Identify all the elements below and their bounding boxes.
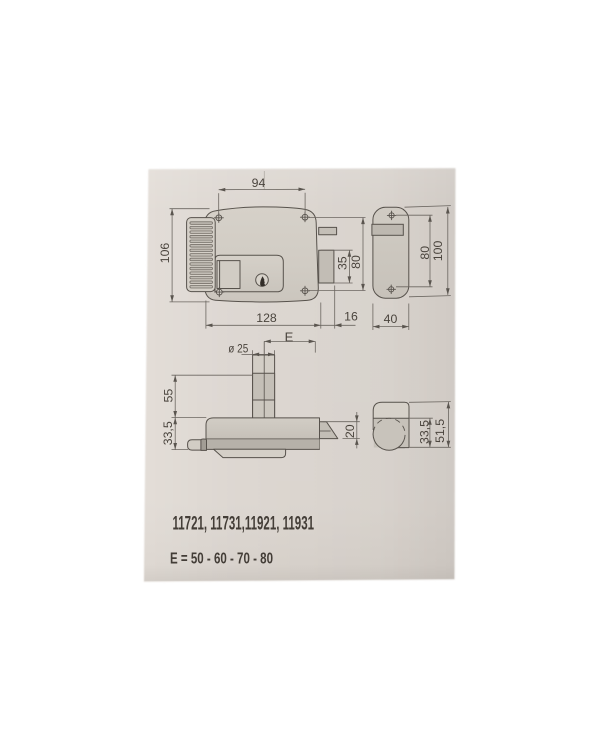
svg-text:E = 50 - 60 - 70 - 80: E = 50 - 60 - 70 - 80: [170, 551, 273, 568]
svg-text:55: 55: [162, 389, 176, 403]
svg-text:106: 106: [158, 243, 172, 264]
svg-text:33,5: 33,5: [161, 421, 175, 445]
svg-text:94: 94: [252, 176, 266, 190]
svg-text:40: 40: [384, 312, 398, 326]
svg-text:51,5: 51,5: [433, 419, 447, 443]
svg-text:20: 20: [343, 424, 357, 438]
svg-text:11721, 11731,11921, 11931: 11721, 11731,11921, 11931: [173, 514, 315, 535]
svg-text:ø 25: ø 25: [228, 341, 248, 355]
svg-text:128: 128: [256, 311, 277, 325]
svg-text:80: 80: [418, 246, 432, 260]
svg-text:16: 16: [344, 310, 358, 324]
svg-text:E: E: [285, 329, 294, 344]
svg-text:80: 80: [349, 255, 363, 269]
svg-text:35: 35: [335, 256, 349, 270]
svg-text:100: 100: [431, 240, 445, 261]
svg-text:33,5: 33,5: [417, 420, 431, 444]
